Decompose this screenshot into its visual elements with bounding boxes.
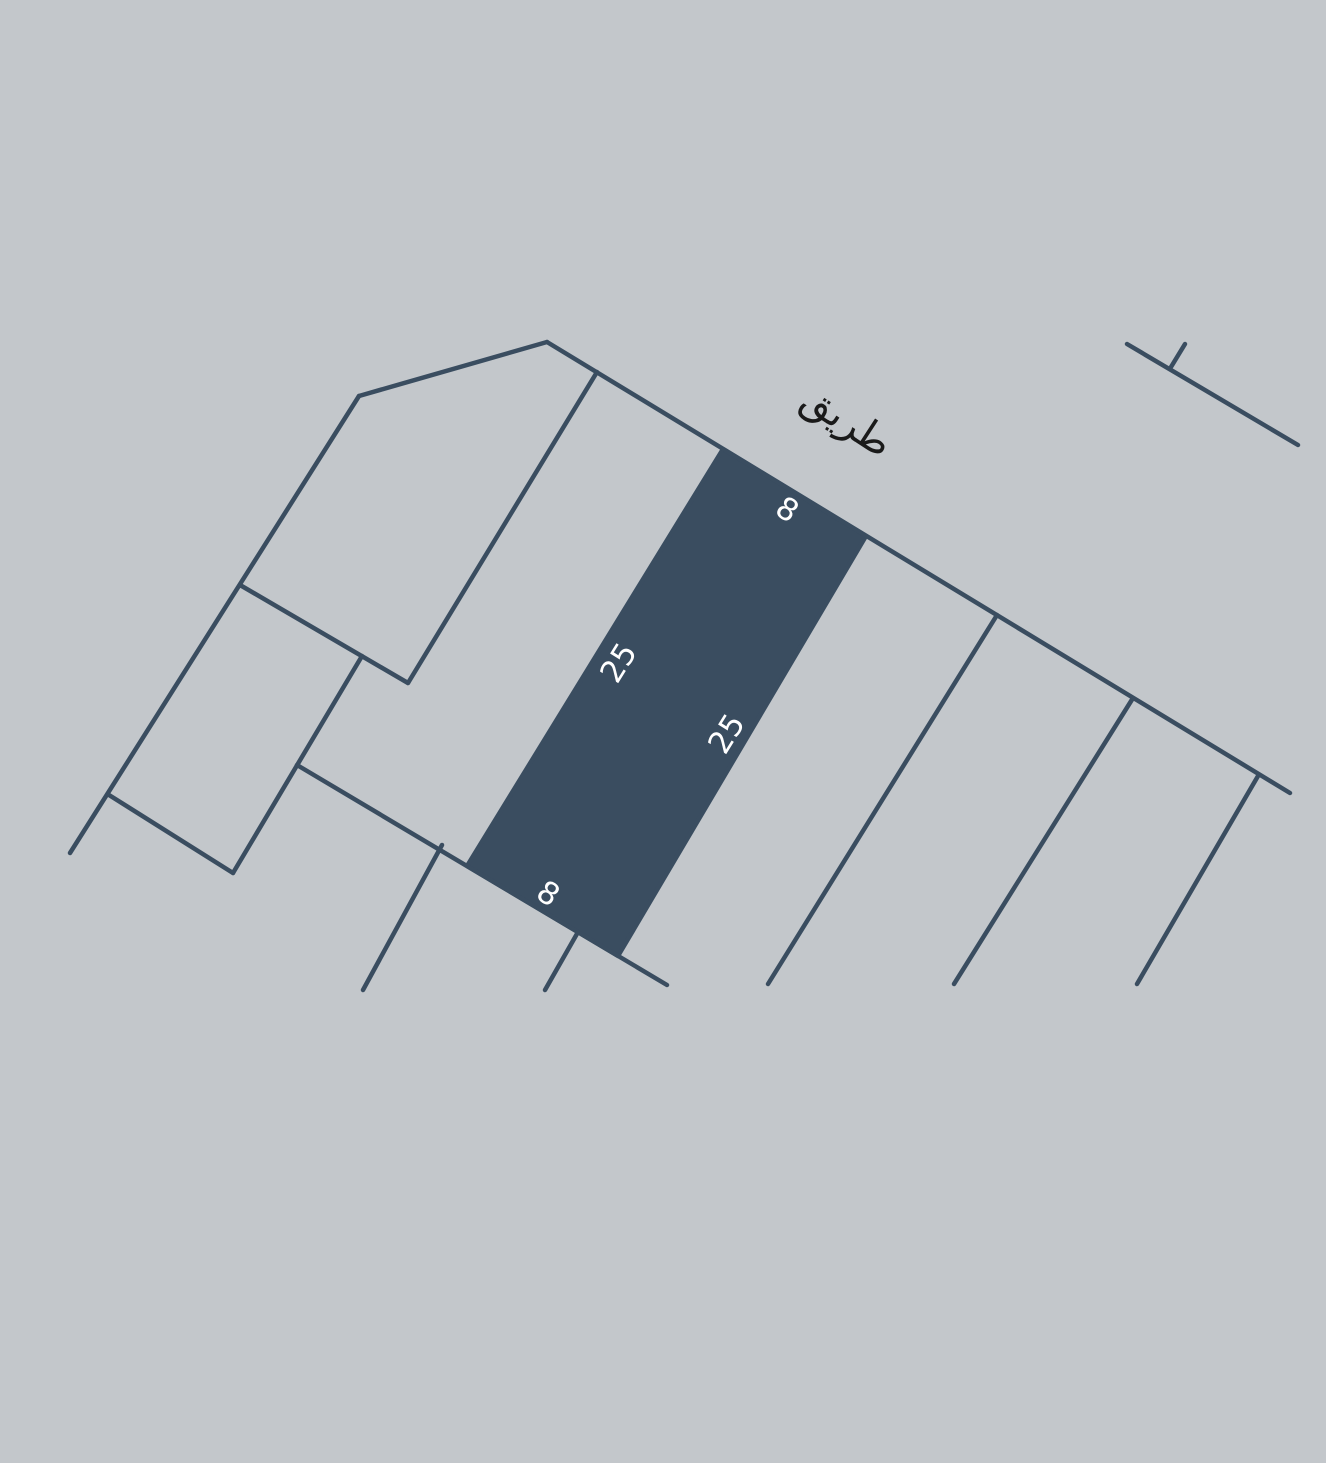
plot-map: طريق825258 xyxy=(0,0,1326,1463)
cadastral-map-stage: طريق825258 xyxy=(0,0,1326,1463)
